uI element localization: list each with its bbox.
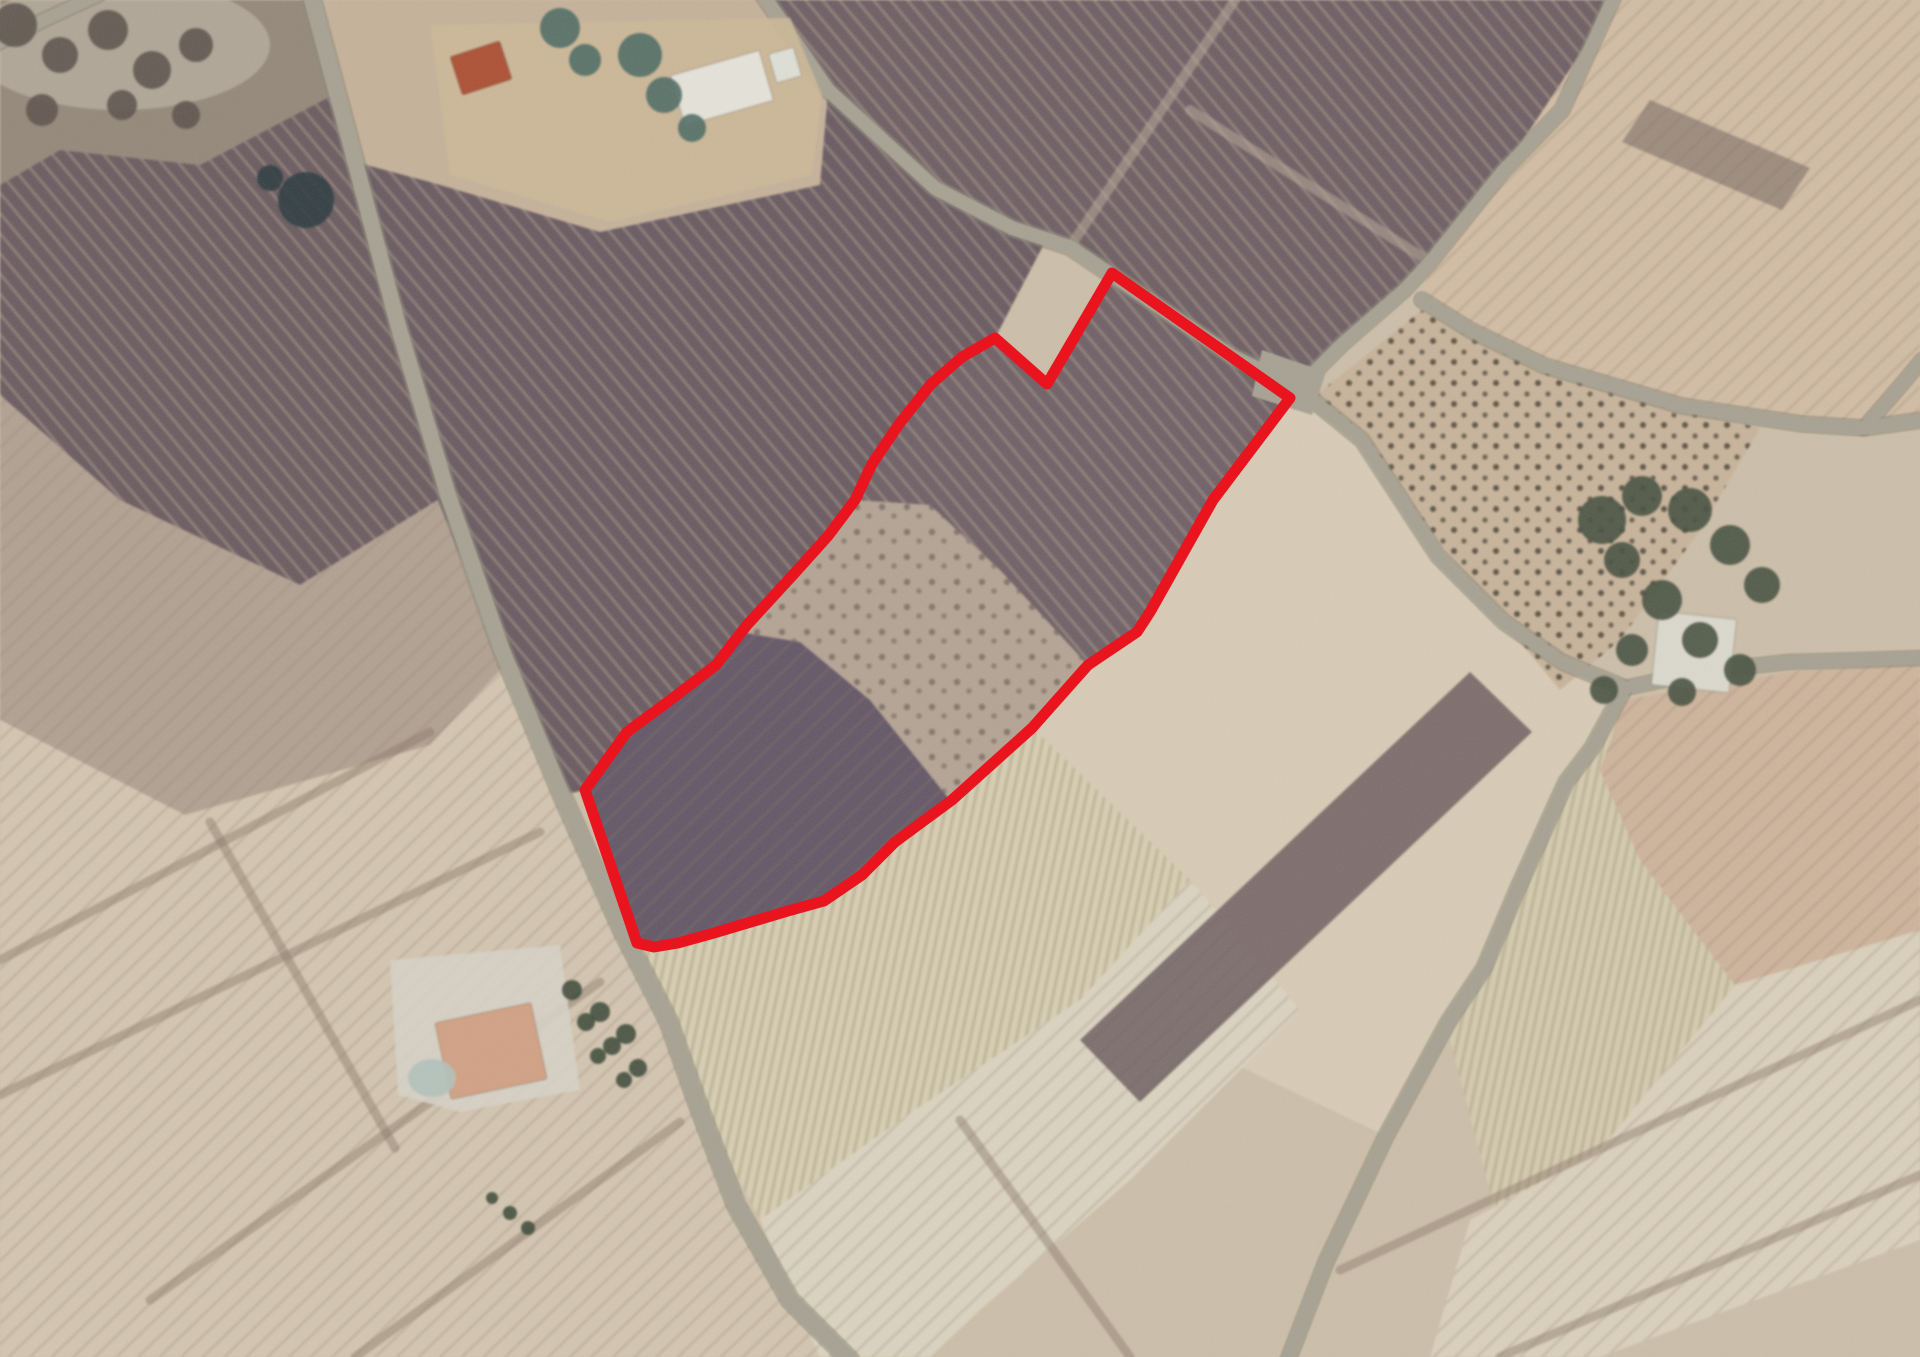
aerial-map xyxy=(0,0,1920,1357)
aerial-photo-canvas xyxy=(0,0,1920,1357)
photo-grain-overlay xyxy=(0,0,1920,1357)
